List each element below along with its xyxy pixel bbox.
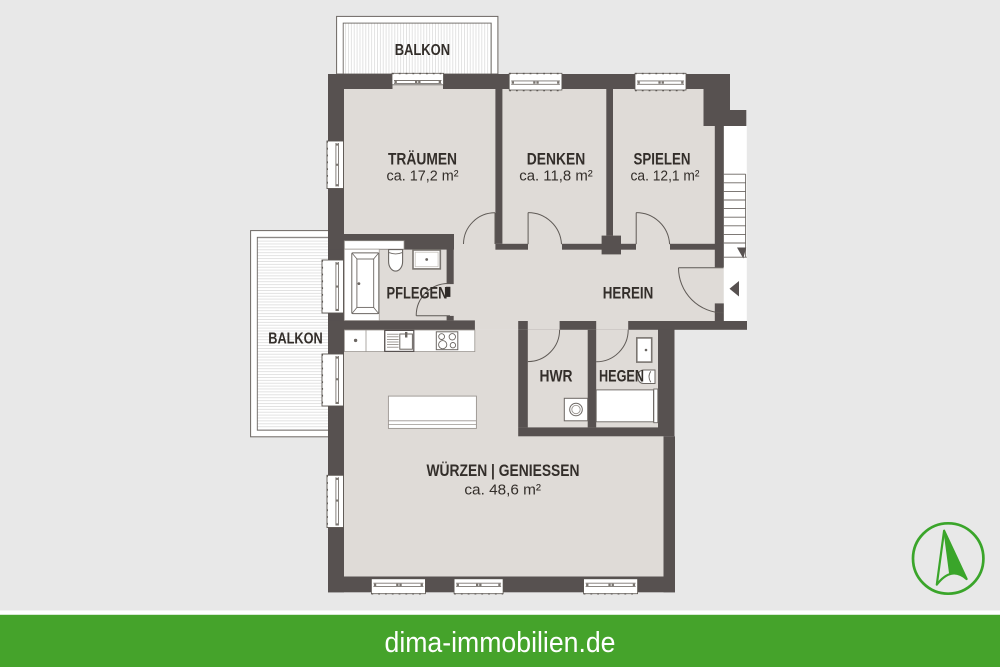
svg-text:HWR: HWR [540, 367, 573, 385]
svg-text:ca. 11,8 m²: ca. 11,8 m² [519, 168, 593, 185]
svg-text:ca. 12,1 m²: ca. 12,1 m² [631, 168, 700, 185]
svg-text:DENKEN: DENKEN [527, 151, 586, 169]
svg-text:SPIELEN: SPIELEN [634, 151, 691, 169]
svg-text:BALKON: BALKON [395, 42, 450, 59]
svg-text:PFLEGEN: PFLEGEN [387, 284, 448, 302]
svg-text:WÜRZEN | GENIESSEN: WÜRZEN | GENIESSEN [427, 461, 580, 480]
svg-text:TRÄUMEN: TRÄUMEN [388, 151, 457, 169]
svg-text:HEREIN: HEREIN [603, 284, 654, 302]
svg-text:ca. 17,2 m²: ca. 17,2 m² [387, 168, 459, 185]
svg-text:dima-immobilien.de: dima-immobilien.de [385, 627, 616, 659]
svg-text:HEGEN: HEGEN [599, 367, 644, 385]
svg-text:BALKON: BALKON [268, 331, 323, 348]
svg-text:ca. 48,6 m²: ca. 48,6 m² [464, 481, 541, 498]
